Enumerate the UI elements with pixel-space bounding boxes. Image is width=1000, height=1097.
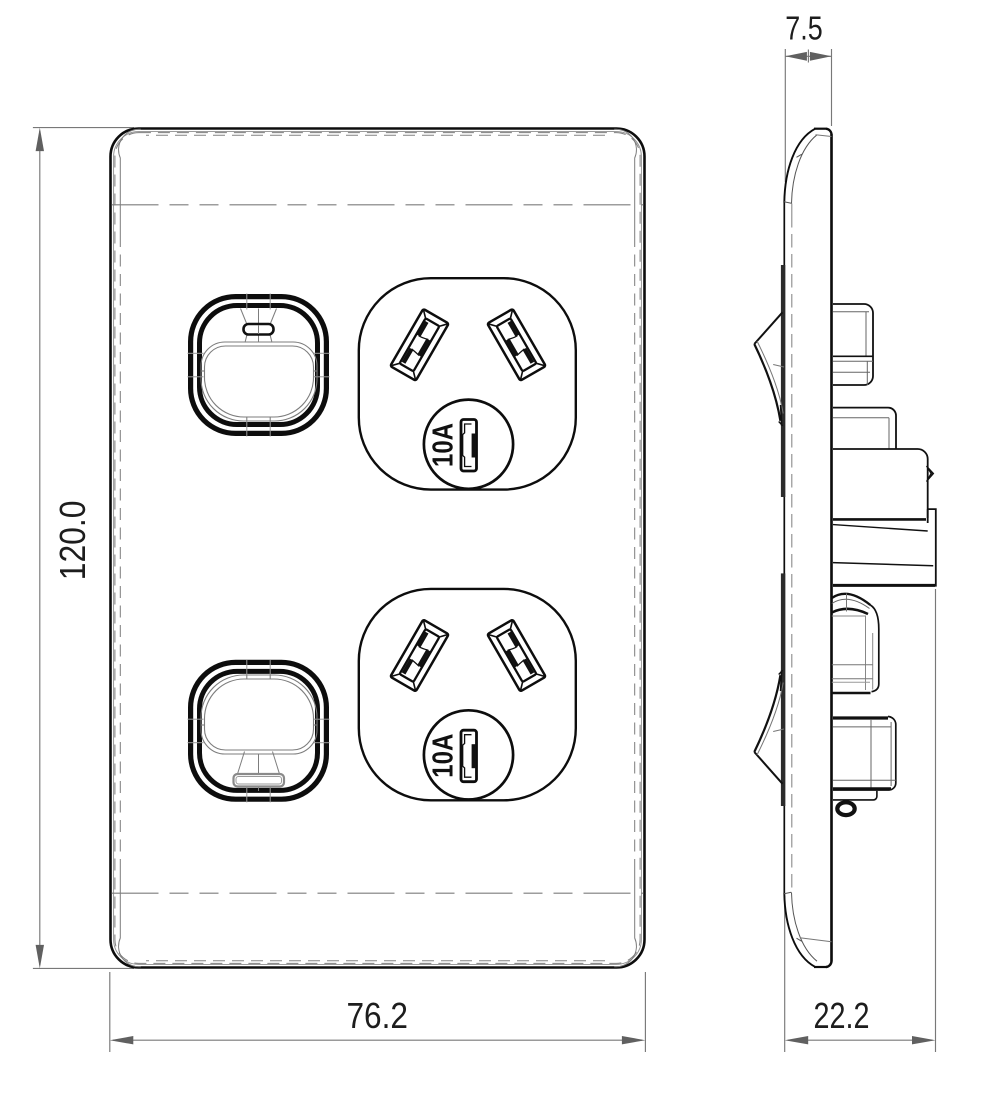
svg-text:22.2: 22.2 (814, 995, 870, 1036)
svg-text:76.2: 76.2 (346, 995, 408, 1036)
svg-text:7.5: 7.5 (785, 10, 822, 48)
svg-text:10A: 10A (428, 423, 460, 467)
svg-text:10A: 10A (428, 734, 460, 778)
svg-text:120.0: 120.0 (52, 501, 93, 581)
